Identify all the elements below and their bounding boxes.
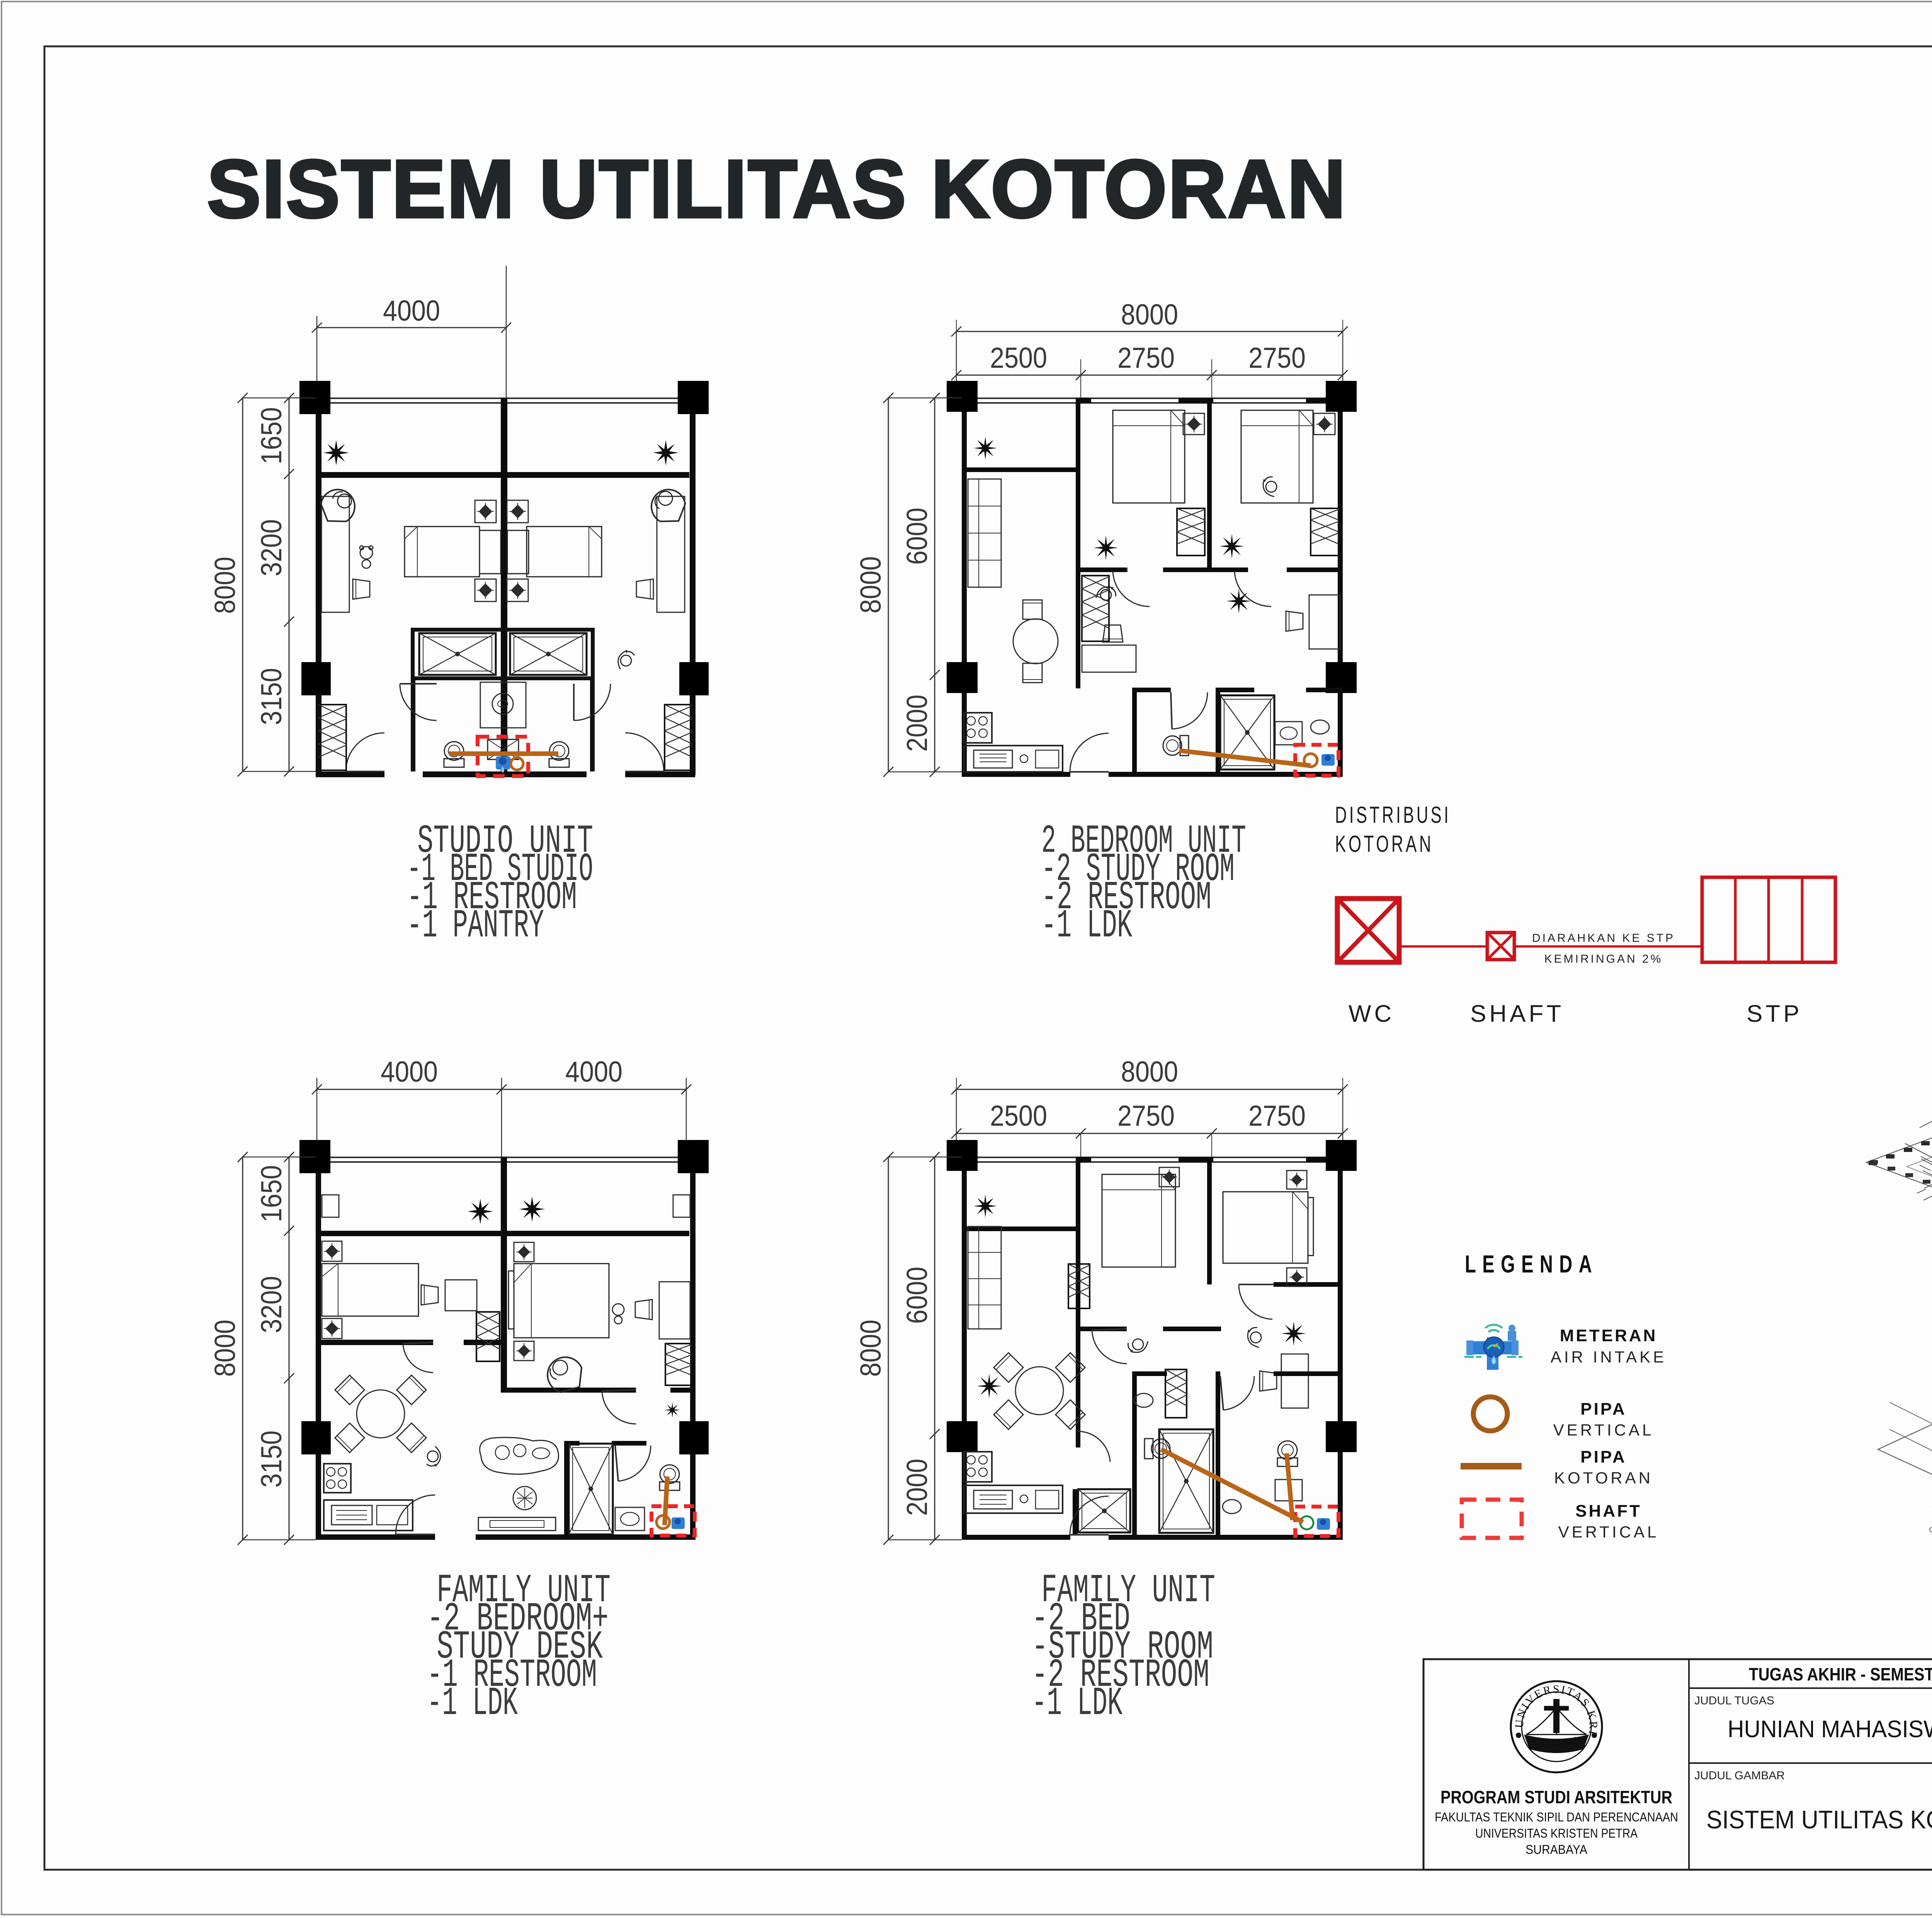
svg-text:JUDUL TUGAS: JUDUL TUGAS	[1694, 1694, 1774, 1707]
svg-text:STP: STP	[1747, 1001, 1803, 1027]
svg-text:-1 PANTRY: -1 PANTRY	[407, 903, 544, 948]
svg-text:4000: 4000	[565, 1055, 622, 1088]
svg-text:KEMIRINGAN 2%: KEMIRINGAN 2%	[1544, 953, 1663, 965]
svg-text:JUDUL GAMBAR: JUDUL GAMBAR	[1694, 1769, 1785, 1782]
svg-text:8000: 8000	[854, 1320, 887, 1377]
svg-text:KOTORAN: KOTORAN	[1335, 831, 1434, 857]
svg-text:SURABAYA: SURABAYA	[1526, 1842, 1587, 1857]
svg-text:2750: 2750	[1248, 341, 1306, 374]
svg-text:SISTEM UTILITAS KOTORAN: SISTEM UTILITAS KOTORAN	[1706, 1805, 1932, 1834]
svg-text:2000: 2000	[901, 695, 933, 752]
svg-text:-1 LDK: -1 LDK	[427, 1681, 518, 1726]
svg-text:VERTICAL: VERTICAL	[1553, 1421, 1654, 1439]
svg-text:LEGENDA: LEGENDA	[1465, 1250, 1598, 1278]
svg-text:AIR INTAKE: AIR INTAKE	[1551, 1348, 1667, 1366]
svg-text:FAKULTAS TEKNIK SIPIL DAN PERE: FAKULTAS TEKNIK SIPIL DAN PERENCANAAN	[1435, 1810, 1678, 1824]
svg-text:8000: 8000	[209, 1320, 241, 1377]
svg-text:3150: 3150	[255, 668, 287, 725]
svg-text:3150: 3150	[255, 1430, 287, 1488]
svg-text:2500: 2500	[990, 1099, 1047, 1132]
svg-text:2750: 2750	[1117, 341, 1175, 374]
svg-text:2500: 2500	[990, 341, 1047, 374]
svg-text:3200: 3200	[255, 1276, 287, 1333]
svg-text:3200: 3200	[255, 519, 287, 576]
svg-text:2750: 2750	[1248, 1099, 1306, 1132]
svg-text:SHAFT: SHAFT	[1575, 1502, 1642, 1520]
svg-text:1650: 1650	[255, 407, 287, 464]
svg-text:-1 LDK: -1 LDK	[1032, 1681, 1122, 1726]
svg-text:8000: 8000	[1121, 298, 1178, 331]
svg-text:TUGAS AKHIR - SEMESTER GENAP 2: TUGAS AKHIR - SEMESTER GENAP 2022/2023	[1749, 1664, 1932, 1684]
svg-text:8000: 8000	[854, 556, 887, 613]
svg-text:HUNIAN MAHASISWA DI SURABAYA: HUNIAN MAHASISWA DI SURABAYA	[1728, 1716, 1932, 1743]
svg-text:WC: WC	[1349, 1001, 1395, 1027]
svg-text:PIPA: PIPA	[1580, 1447, 1626, 1466]
svg-text:8000: 8000	[1121, 1055, 1178, 1088]
svg-text:SHAFT: SHAFT	[1470, 1001, 1564, 1027]
svg-text:SISTEM UTILITAS KOTORAN: SISTEM UTILITAS KOTORAN	[207, 143, 1347, 234]
svg-text:4000: 4000	[383, 294, 440, 327]
svg-text:METERAN: METERAN	[1560, 1326, 1658, 1345]
svg-text:4000: 4000	[381, 1055, 438, 1088]
svg-text:KOTORAN: KOTORAN	[1554, 1469, 1653, 1487]
svg-text:DIARAHKAN KE STP: DIARAHKAN KE STP	[1532, 932, 1675, 945]
svg-text:PIPA: PIPA	[1580, 1400, 1626, 1419]
svg-text:8000: 8000	[209, 557, 241, 614]
svg-text:2750: 2750	[1117, 1099, 1175, 1132]
svg-text:2000: 2000	[901, 1459, 933, 1516]
svg-text:UNIVERSITAS KRISTEN PETRA: UNIVERSITAS KRISTEN PETRA	[1475, 1826, 1638, 1840]
svg-text:6000: 6000	[901, 1267, 933, 1324]
svg-text:1650: 1650	[255, 1165, 287, 1222]
svg-text:DISTRIBUSI: DISTRIBUSI	[1335, 802, 1451, 828]
svg-text:PROGRAM STUDI ARSITEKTUR: PROGRAM STUDI ARSITEKTUR	[1440, 1787, 1672, 1807]
svg-text:6000: 6000	[901, 508, 933, 565]
svg-text:VERTICAL: VERTICAL	[1558, 1523, 1659, 1541]
svg-text:-1 LDK: -1 LDK	[1041, 903, 1132, 948]
